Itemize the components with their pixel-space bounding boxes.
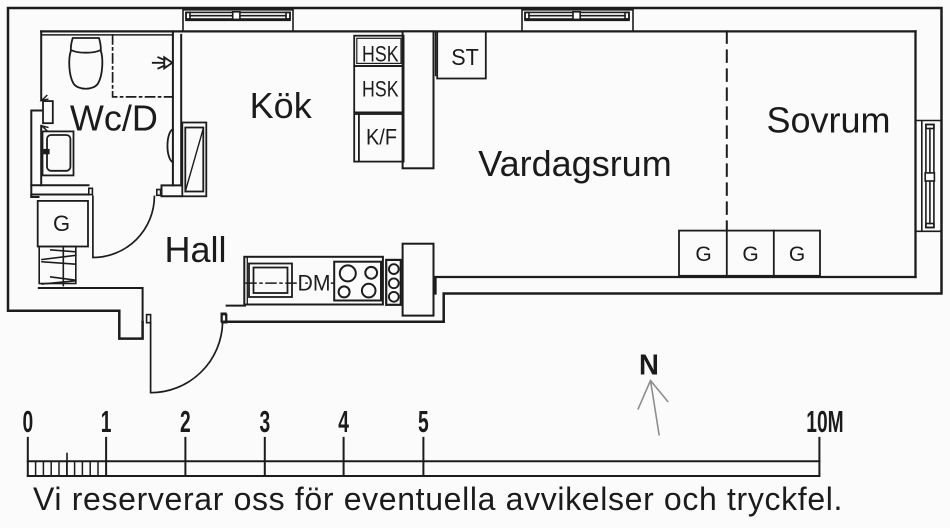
svg-text:Vi reserverar oss för eventuel: Vi reserverar oss för eventuella avvikel… <box>33 481 843 517</box>
svg-text:Vardagsrum: Vardagsrum <box>478 143 671 184</box>
svg-text:Hall: Hall <box>164 229 226 270</box>
svg-text:0: 0 <box>22 406 33 440</box>
svg-text:G: G <box>53 211 70 236</box>
svg-text:HSK: HSK <box>362 41 399 66</box>
svg-text:N: N <box>639 348 659 381</box>
svg-text:ST: ST <box>451 44 479 70</box>
svg-text:Sovrum: Sovrum <box>766 100 890 141</box>
svg-text:Kök: Kök <box>250 85 313 126</box>
svg-text:G: G <box>695 243 711 266</box>
svg-text:1: 1 <box>101 406 112 440</box>
svg-text:2: 2 <box>180 406 191 440</box>
svg-text:K/F: K/F <box>366 125 397 150</box>
svg-text:DM: DM <box>298 271 331 296</box>
svg-text:5: 5 <box>418 406 429 440</box>
svg-text:HSK: HSK <box>362 77 399 102</box>
svg-text:G: G <box>789 243 805 266</box>
svg-text:3: 3 <box>259 406 270 440</box>
svg-text:Wc/D: Wc/D <box>70 98 158 139</box>
svg-text:4: 4 <box>338 406 349 440</box>
svg-text:G: G <box>742 243 758 266</box>
svg-text:10M: 10M <box>806 406 843 440</box>
